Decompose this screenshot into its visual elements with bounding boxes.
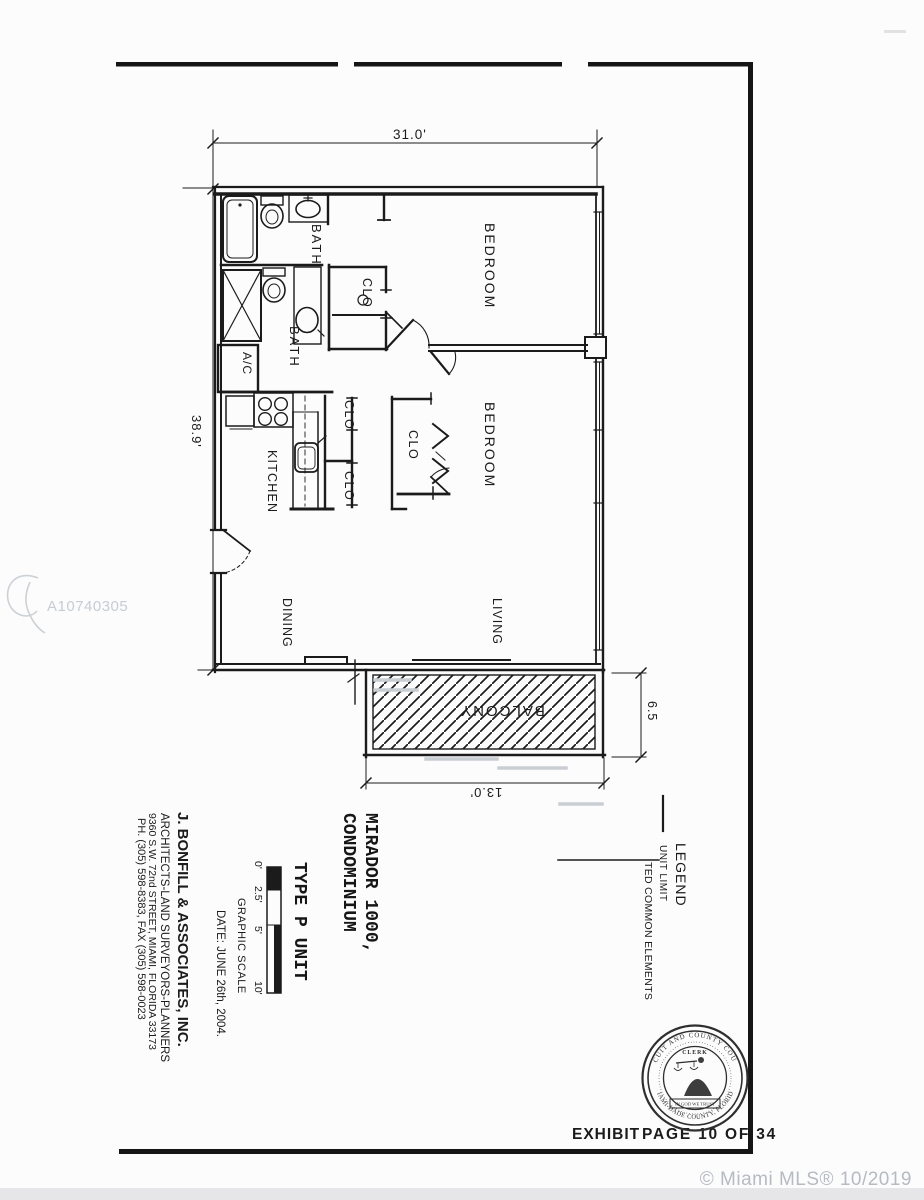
room-label-living: LIVING: [490, 598, 504, 645]
scanned-floor-plan-photo: BATH BATH A/C KITCHEN CLO CLO CLO CLO BE…: [0, 0, 924, 1200]
room-label-bedroom-1: BEDROOM: [482, 223, 498, 309]
seal-motto-text: IN GOD WE TRUST: [675, 1102, 715, 1107]
copyright-text: © Miami MLS® 10/2019: [700, 1169, 912, 1190]
tub-drain: [238, 203, 241, 206]
drawing-date: DATE: JUNE 26th, 2004.: [214, 910, 226, 1037]
exhibit-label: EXHIBIT: [572, 1126, 640, 1143]
dimension-balcony-depth: 6.5: [645, 701, 659, 721]
scale-tick-0: 0': [252, 861, 264, 869]
room-label-bedroom-2: BEDROOM: [482, 402, 498, 488]
border-bottom: [119, 1149, 753, 1154]
scale-tick-2-5: 2.5': [252, 886, 264, 903]
floor-plan-canvas: BATH BATH A/C KITCHEN CLO CLO CLO CLO BE…: [0, 0, 924, 1200]
firm-name: J. BONFILL & ASSOCIATES, INC.: [174, 812, 191, 1047]
dimension-left: 38.9': [189, 415, 204, 448]
room-label-dining: DINING: [280, 598, 294, 648]
firm-phone: PH. (305) 598-8383, FAX (305) 598-0023: [135, 818, 147, 1020]
scale-tick-10: 10': [252, 981, 264, 995]
scan-artifact: [884, 30, 906, 33]
seal-clerk-text: CLERK: [682, 1050, 708, 1056]
room-label-closet-bath: CLO: [360, 278, 374, 308]
border-right: [748, 62, 753, 1154]
room-label-closet-1: CLO: [342, 400, 356, 430]
unit-type: TYPE P UNIT: [289, 862, 309, 981]
wall-pier: [585, 337, 606, 358]
room-label-ac: A/C: [240, 352, 254, 375]
room-label-closet-2: CLO: [342, 471, 356, 501]
project-name-line1: MIRADOR 1000,: [360, 813, 380, 953]
legend-item-unit-limit: UNIT LIMIT: [657, 845, 668, 901]
scale-tick-5: 5': [252, 926, 264, 934]
paper-background: [0, 0, 924, 1200]
border-top-segment: [354, 62, 562, 67]
room-label-closet-bedroom2: CLO: [406, 430, 420, 460]
legend-item-common-elements: TED COMMON ELEMENTS: [642, 862, 654, 1000]
dimension-top: 31.0': [393, 127, 427, 142]
border-top-segment: [116, 62, 338, 67]
room-label-bath-1: BATH: [309, 224, 324, 266]
watermark-id-text: A10740305: [47, 598, 128, 615]
room-label-kitchen: KITCHEN: [265, 450, 279, 513]
legend-title: LEGEND: [673, 843, 689, 907]
border-top-segment: [588, 62, 753, 67]
room-label-bath-2: BATH: [287, 326, 302, 368]
graphic-scale-title: GRAPHIC SCALE: [235, 898, 247, 994]
exhibit-footer: EXHIBIT PAGE 10 OF 34: [572, 1126, 777, 1143]
room-label-balcony: BALCONY: [459, 702, 545, 719]
firm-role: ARCHITECTS-LAND SURVEYORS-PLANNERS: [158, 813, 170, 1062]
project-name-line2: CONDOMINIUM: [338, 813, 358, 932]
dimension-balcony-width: 13.0': [470, 785, 503, 800]
